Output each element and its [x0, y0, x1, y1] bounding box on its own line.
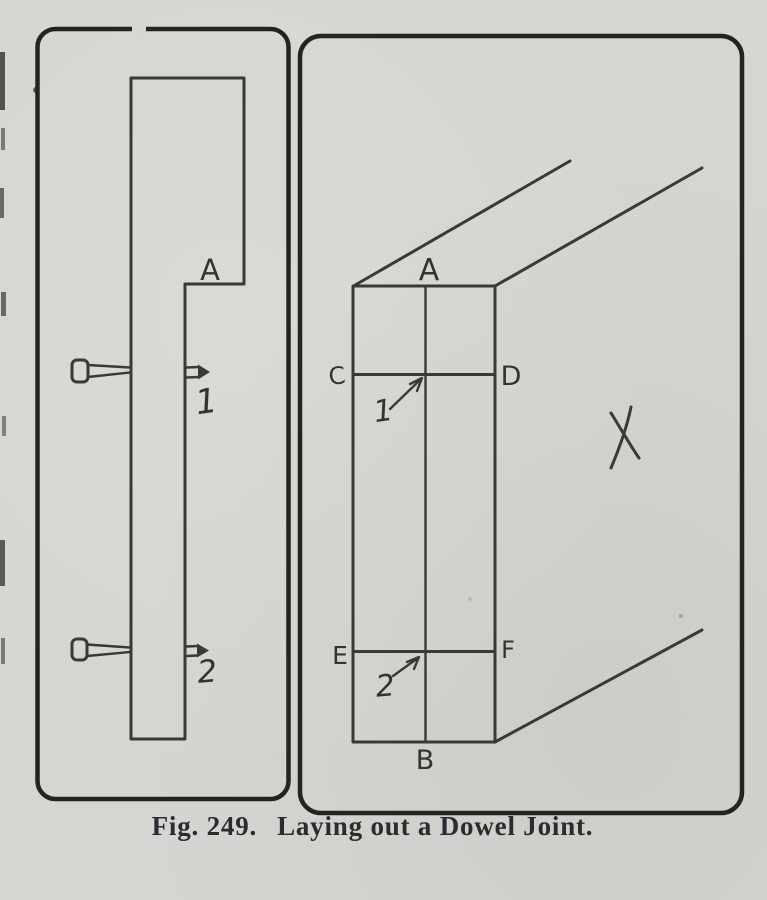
line-1-label: 1	[371, 393, 395, 430]
scan-speck	[0, 188, 4, 218]
pin-shank	[87, 645, 130, 657]
scan-speck	[679, 614, 683, 618]
point-a-label: A	[419, 253, 440, 288]
dowel-2-label: 2	[196, 653, 219, 691]
arrow-1	[390, 378, 422, 409]
arrow-2	[393, 657, 419, 676]
figure-caption: Fig. 249.Laying out a Dowel Joint.	[0, 811, 745, 842]
point-c-label: C	[327, 361, 347, 391]
figure-title: Laying out a Dowel Joint.	[277, 811, 593, 841]
pin-head	[72, 360, 88, 382]
figure-page: A 1 2	[0, 0, 767, 900]
left-panel: A 1 2	[38, 24, 289, 799]
pin-shank	[88, 365, 130, 377]
dowel-1-label: 1	[193, 381, 220, 424]
scan-speck	[1, 292, 6, 316]
point-f-label: F	[501, 636, 515, 664]
scan-speck	[1, 128, 5, 150]
point-d-label: D	[501, 361, 522, 392]
left-panel-frame	[38, 29, 289, 799]
dowel-pin-1	[72, 360, 210, 382]
pin-tip-point	[198, 365, 210, 380]
line-2-label: 2	[374, 668, 396, 705]
scan-speck	[468, 597, 472, 601]
edge-bottom	[495, 630, 702, 742]
figure-drawing: A 1 2	[0, 0, 767, 900]
scan-speck	[2, 416, 6, 436]
dowel-pin-2	[72, 639, 209, 660]
x-mark	[611, 407, 639, 468]
point-b-label: B	[416, 745, 435, 776]
arrow-line	[390, 379, 421, 409]
scan-speck	[0, 540, 5, 586]
right-panel-frame	[300, 36, 742, 813]
frame-gap	[132, 24, 146, 34]
pin-head	[72, 639, 87, 660]
right-panel: A C D E F B 1 2	[300, 36, 742, 813]
scan-artifacts	[0, 52, 683, 664]
point-e-label: E	[332, 641, 348, 670]
pin-tip	[186, 367, 199, 378]
board-edge-outline	[131, 78, 244, 739]
step-corner-label: A	[200, 253, 220, 287]
edge-top-left	[354, 161, 571, 286]
scan-speck	[0, 52, 5, 110]
x-mark-stroke	[611, 413, 639, 458]
figure-number: Fig. 249.	[152, 811, 257, 841]
scan-speck	[1, 638, 5, 664]
